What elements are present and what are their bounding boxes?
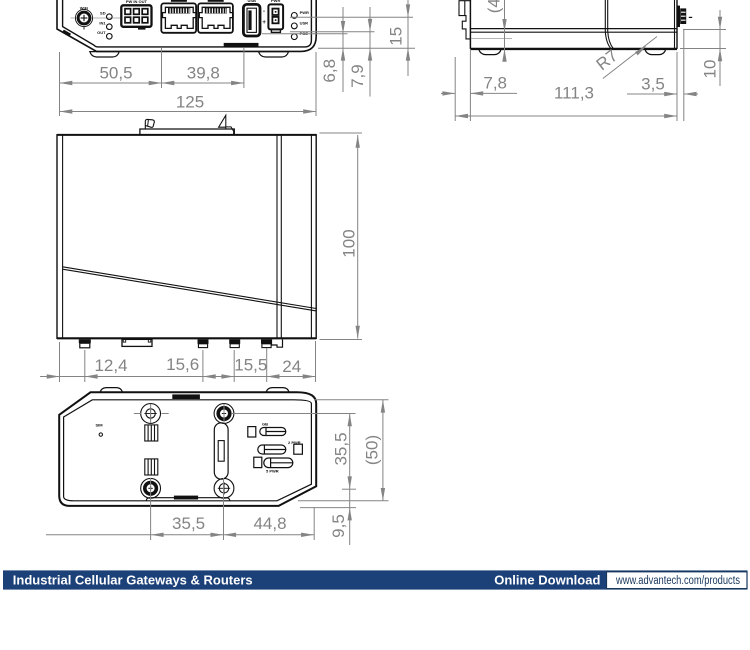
svg-text:PWR: PWR	[271, 0, 280, 3]
svg-text:Industrial Cellular Gateways &: Industrial Cellular Gateways & Routers	[13, 573, 253, 588]
svg-text:6,8: 6,8	[320, 59, 339, 83]
svg-text:2 PWR: 2 PWR	[288, 440, 301, 445]
svg-text:15: 15	[387, 27, 406, 46]
svg-text:39,8: 39,8	[187, 64, 220, 83]
svg-text:125: 125	[176, 93, 204, 112]
svg-text:IN1: IN1	[99, 20, 106, 25]
svg-text:OUT: OUT	[97, 30, 106, 35]
svg-text:44,8: 44,8	[253, 514, 286, 533]
svg-text:24: 24	[282, 357, 301, 376]
svg-text:15,6: 15,6	[166, 355, 199, 374]
svg-text:Online Download: Online Download	[494, 573, 600, 588]
svg-text:3,5: 3,5	[641, 74, 665, 93]
svg-text:50,5: 50,5	[99, 64, 132, 83]
svg-text:-: -	[263, 9, 265, 15]
svg-text:(50): (50)	[362, 435, 381, 465]
svg-text:15,5: 15,5	[234, 355, 267, 374]
svg-text:+: +	[262, 20, 266, 26]
svg-text:USR: USR	[300, 20, 309, 25]
svg-text:PW IN OUT: PW IN OUT	[126, 0, 148, 4]
svg-text:(45: (45	[485, 0, 504, 13]
svg-text:GB: GB	[262, 422, 268, 427]
svg-text:12,4: 12,4	[94, 356, 127, 375]
svg-text:7,9: 7,9	[348, 64, 367, 88]
svg-text:www.advantech.com/products: www.advantech.com/products	[615, 575, 740, 587]
svg-text:SD: SD	[100, 10, 106, 15]
svg-text:35,5: 35,5	[172, 514, 205, 533]
svg-text:7,8: 7,8	[483, 74, 507, 93]
svg-text:PWR: PWR	[300, 10, 309, 15]
svg-text:10: 10	[701, 60, 720, 79]
svg-text:USB: USB	[247, 0, 256, 3]
svg-text:5 PWR: 5 PWR	[266, 468, 279, 473]
svg-text:WiFi: WiFi	[80, 5, 88, 10]
svg-text:SIM: SIM	[96, 423, 104, 428]
svg-text:111,3: 111,3	[554, 83, 594, 102]
svg-text:9,5: 9,5	[329, 514, 348, 538]
svg-text:100: 100	[339, 229, 358, 257]
svg-text:35,5: 35,5	[332, 432, 351, 465]
svg-text:R7: R7	[593, 46, 622, 74]
